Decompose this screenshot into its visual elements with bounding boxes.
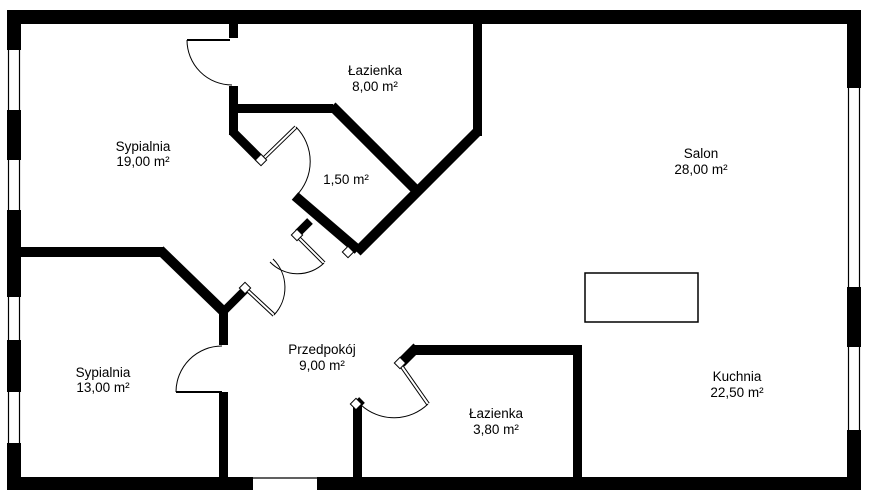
room-area: 8,00 m² (352, 79, 398, 94)
room-label-kuchnia: Kuchnia 22,50 m² (710, 369, 764, 400)
room-label-sypialnia-13: Sypialnia 13,00 m² (76, 365, 131, 395)
room-area: 19,00 m² (116, 154, 170, 169)
room-label-sypialnia-19: Sypialnia 19,00 m² (116, 139, 171, 169)
wall-bath380-top (413, 345, 582, 355)
room-name: Sypialnia (76, 365, 131, 380)
room-area: 1,50 m² (323, 172, 369, 187)
wall-bath8-south (229, 104, 333, 113)
room-area: 13,00 m² (76, 380, 130, 395)
room-label-wc-150: 1,50 m² (323, 172, 369, 187)
wall-bath380-left (353, 406, 362, 477)
outer-wall-bottom-left (7, 477, 253, 490)
outer-wall-left-seg (7, 340, 21, 392)
room-area: 28,00 m² (674, 162, 728, 177)
room-label-lazienka-380: Łazienka 3,80 m² (469, 406, 524, 437)
room-name: Łazienka (348, 63, 403, 78)
room-name: Kuchnia (713, 369, 762, 384)
kitchen-counter (585, 273, 698, 322)
outer-wall-left-seg (7, 10, 21, 50)
room-name: Salon (684, 146, 719, 161)
wall-bedroom19-south (19, 247, 163, 257)
wall-bedroom19-bath8-upper (229, 24, 238, 38)
outer-wall-right-seg (847, 287, 861, 347)
outer-wall-left-seg (7, 210, 21, 297)
floor-plan: Sypialnia 19,00 m² Łazienka 8,00 m² Salo… (0, 0, 871, 503)
outer-wall-top (7, 10, 861, 24)
wall-bath380-right (573, 345, 582, 477)
room-area: 9,00 m² (299, 358, 345, 373)
outer-wall-right-seg (847, 10, 861, 88)
floor-plan-drawing: Sypialnia 19,00 m² Łazienka 8,00 m² Salo… (0, 0, 871, 503)
wall-hall-bedroom13-lower (219, 392, 228, 477)
room-name: Łazienka (469, 406, 524, 421)
outer-wall-bottom-right (317, 477, 861, 490)
room-area: 22,50 m² (710, 385, 764, 400)
outer-wall-left-seg (7, 110, 21, 160)
room-label-lazienka-8: Łazienka 8,00 m² (348, 63, 403, 94)
room-area: 3,80 m² (473, 422, 519, 437)
room-name: Sypialnia (116, 139, 171, 154)
room-name: Przedpokój (288, 342, 356, 357)
wall-salon-west (473, 24, 482, 136)
